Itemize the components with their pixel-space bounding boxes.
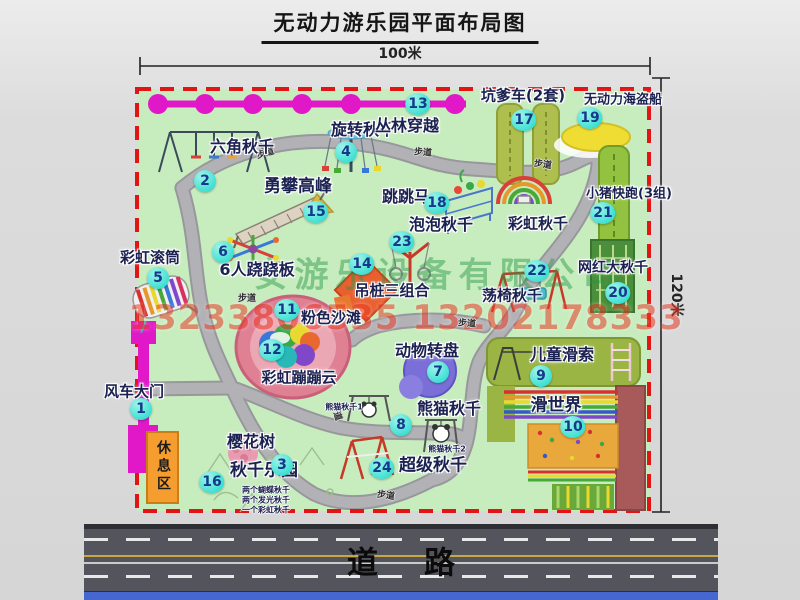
badge-super-swing: 24: [369, 457, 394, 479]
badge-pirate-ship: 19: [577, 107, 602, 129]
label-pit-car: 坑爹车(2套): [481, 89, 565, 104]
badge-animal-carousel: 7: [427, 361, 449, 383]
badge-big-swing: 20: [605, 282, 630, 304]
label-animal-carousel: 动物转盘: [395, 343, 459, 359]
path-label: 步道: [458, 315, 477, 329]
label-pirate-ship: 无动力海盗船: [584, 94, 662, 107]
label-hexagon-swing: 六角秋千: [210, 139, 274, 155]
path-label: 步道: [238, 291, 256, 304]
badge-swing-park: 16: [199, 471, 224, 493]
badge-rainbow-roller: 5: [147, 267, 169, 289]
watermark-company: 安游乐设备有限公司: [254, 248, 623, 297]
road-label: 道路: [301, 538, 501, 583]
label-swing-chair: 荡椅秋千: [482, 289, 542, 304]
label-piggy-run: 小猪快跑(3组): [586, 188, 672, 201]
path-label: 步道: [376, 487, 396, 502]
badge-kids-zipline: 9: [530, 365, 552, 387]
badge-rotating-swing: 4: [335, 141, 357, 163]
label-windmill-gate: 风车大门: [104, 385, 164, 400]
label-panda-swing-2: 熊猫秋千2: [428, 444, 466, 455]
label-super-swing: 超级秋千: [399, 458, 467, 475]
label-rainbow-bounce-cloud: 彩虹蹦蹦云: [261, 371, 336, 386]
road: 道路: [84, 524, 718, 596]
label-jungle-crossing: 丛林穿越: [375, 118, 439, 134]
badge-windmill-gate: 1: [130, 398, 152, 420]
badge-panda-swing: 8: [390, 414, 412, 436]
badge-pit-car: 17: [511, 109, 536, 131]
label-rainbow-swing: 彩虹秋千: [508, 217, 568, 232]
label-slide-world: 滑世界: [531, 398, 582, 415]
badge-six-person-seesaw: 6: [212, 241, 234, 263]
label-jumping-horse: 跳跳马: [382, 189, 430, 205]
path-label: 步道: [533, 156, 553, 171]
badge-cherry-tree: 3: [271, 454, 293, 476]
badge-swing-chair: 22: [524, 260, 549, 282]
label-panda-swing-1: 熊猫秋千1: [325, 402, 363, 413]
park-layout-screenshot: 无动力游乐园平面布局图 100米 120米 安游乐设备有限公司 13233806…: [0, 0, 800, 600]
label-six-person-seesaw: 6人跷跷板: [219, 262, 294, 278]
badge-slide-world: 10: [560, 416, 585, 438]
label-kids-zipline: 儿童滑索: [530, 347, 594, 363]
rest-area-label: 休息区: [153, 440, 173, 494]
badge-pink-beach: 11: [274, 299, 299, 321]
badge-rainbow-bounce-cloud: 12: [259, 339, 284, 361]
label-cherry-tree: 樱花树: [227, 434, 275, 450]
label-hanging-pile-combo: 吊桩三组合: [354, 284, 429, 299]
swing-park-note-3: 一个彩虹秋千: [242, 505, 290, 516]
label-climbing-peak: 勇攀高峰: [264, 179, 332, 196]
badge-bubble-swing: 23: [389, 231, 414, 253]
scale-top-label: 100米: [378, 43, 421, 63]
badge-piggy-run: 21: [590, 202, 615, 224]
label-rainbow-roller: 彩虹滚筒: [120, 251, 180, 266]
badge-jumping-horse: 18: [424, 192, 449, 214]
badge-climbing-peak: 15: [303, 201, 328, 223]
page-title: 无动力游乐园平面布局图: [262, 7, 539, 44]
path-label: 步道: [414, 144, 433, 158]
badge-jungle-crossing: 13: [405, 93, 430, 115]
badge-hexagon-swing: 2: [194, 170, 216, 192]
badge-hanging-pile-combo: 14: [349, 253, 374, 275]
watermark-phone: 13233806535 13202178333: [128, 298, 683, 338]
bottom-blue-bar: [84, 592, 718, 600]
label-panda-swing: 熊猫秋千: [417, 401, 481, 417]
label-big-swing: 网红大秋千: [578, 261, 648, 275]
label-bubble-swing: 泡泡秋千: [409, 217, 473, 233]
label-pink-beach: 粉色沙滩: [301, 311, 361, 326]
